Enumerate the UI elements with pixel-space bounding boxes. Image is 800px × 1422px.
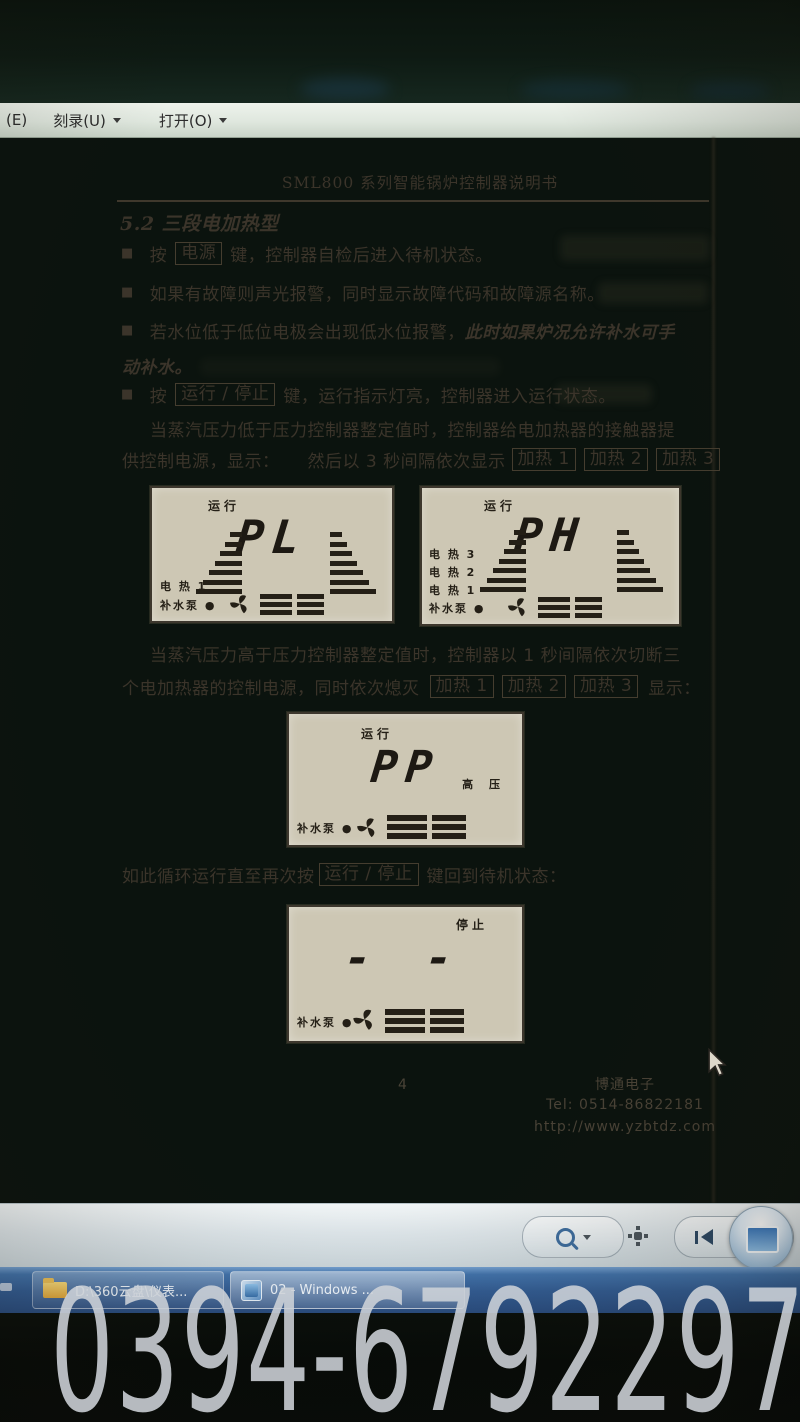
lcd-label-pump: 补水泵 ● bbox=[429, 600, 485, 616]
bullet-item: ■ 如果有故障则声光报警，同时显示故障代码和故障源名称。 bbox=[121, 280, 605, 305]
lcd-label-pump: 补水泵 ● bbox=[297, 820, 353, 836]
heat3-key-box: 加热 3 bbox=[574, 675, 638, 698]
lcd-label-heater2: 电 热 2 bbox=[429, 564, 476, 580]
heat2-key-box: 加热 2 bbox=[502, 675, 566, 698]
section-heading: 5.2 三段电加热型 bbox=[120, 209, 279, 236]
bullet-text: 键，控制器自检后进入待机状态。 bbox=[230, 241, 493, 266]
paragraph-text: 供控制电源，显示： bbox=[122, 447, 280, 472]
run-stop-key-box: 运行 / 停止 bbox=[175, 383, 275, 406]
page-number: 4 bbox=[398, 1077, 408, 1093]
bullet-text: 按 bbox=[150, 382, 168, 407]
page-title: SML800 系列智能锅炉控制器说明书 bbox=[120, 171, 720, 193]
menu-bar: (E) 刻录(U) 打开(O) bbox=[0, 103, 800, 138]
fan-icon bbox=[355, 815, 380, 840]
screen-reflection bbox=[520, 80, 630, 100]
bullet-marker: ■ bbox=[121, 246, 134, 261]
heat1-key-box: 加热 1 bbox=[430, 675, 494, 698]
bullet-text: 键，运行指示灯亮，控制器进入运行状态。 bbox=[283, 382, 616, 407]
taskbar-item-partial[interactable] bbox=[0, 1283, 12, 1291]
company-url: http://www.yzbtdz.com bbox=[520, 1119, 730, 1135]
fan-icon bbox=[506, 595, 530, 619]
lcd-display-pl: 运行 PL 电 热 1 补水泵 ● bbox=[150, 486, 394, 623]
zoom-control-pill[interactable] bbox=[522, 1216, 624, 1258]
paragraph-text: 个电加热器的控制电源，同时依次熄灭 bbox=[122, 674, 420, 699]
lcd-label-heater1: 电 热 1 bbox=[429, 582, 476, 598]
run-stop-key-box: 运行 / 停止 bbox=[319, 863, 419, 886]
photo-of-monitor: (E) 刻录(U) 打开(O) SML800 系列智能锅炉控制器说明书 5.2 … bbox=[0, 0, 800, 1422]
heater-coil-icon bbox=[538, 597, 602, 618]
actual-size-icon bbox=[628, 1226, 648, 1246]
lcd-display-stop: 停止 - - 补水泵 ● bbox=[287, 905, 524, 1043]
zoom-caret-icon bbox=[583, 1235, 591, 1240]
menu-item-label: 打开(O) bbox=[159, 110, 213, 131]
bullet-text: 按 bbox=[150, 241, 168, 266]
paragraph-line: 当蒸汽压力高于压力控制器整定值时，控制器以 1 秒间隔依次切断三 bbox=[150, 641, 681, 666]
paragraph-text: 然后以 3 秒间隔依次显示 bbox=[308, 447, 506, 472]
heater-coil-icon bbox=[387, 815, 466, 839]
menu-item-label: (E) bbox=[6, 111, 27, 129]
power-key-box: 电源 bbox=[175, 242, 222, 265]
fan-icon bbox=[228, 592, 252, 616]
company-tel: Tel: 0514-86822181 bbox=[520, 1097, 730, 1113]
previous-icon bbox=[695, 1231, 698, 1244]
actual-size-button[interactable] bbox=[628, 1226, 648, 1246]
photo-icon bbox=[746, 1226, 779, 1253]
bullet-item: ■ 按 电源 键，控制器自检后进入待机状态。 bbox=[121, 241, 493, 266]
menu-item-open[interactable]: 打开(O) bbox=[153, 110, 234, 131]
lcd-value: - - bbox=[286, 933, 524, 984]
bullet-item: ■ 按 运行 / 停止 键，运行指示灯亮，控制器进入运行状态。 bbox=[121, 382, 616, 407]
company-name: 博通电子 bbox=[520, 1074, 730, 1094]
previous-icon bbox=[701, 1229, 713, 1245]
lcd-status-label: 运行 bbox=[361, 725, 393, 742]
paragraph-line: 个电加热器的控制电源，同时依次熄灭 加热 1 加热 2 加热 3 显示： bbox=[122, 674, 701, 699]
heater-coil-icon bbox=[385, 1009, 464, 1033]
screen-reflection bbox=[300, 78, 390, 100]
heat2-key-box: 加热 2 bbox=[584, 448, 648, 471]
menu-item-file-partial[interactable]: (E) bbox=[0, 111, 33, 129]
watermark-text: 0394-6792297 bbox=[50, 1268, 800, 1422]
ink-bleed-smudge bbox=[560, 235, 710, 261]
lcd-status-label: 停止 bbox=[456, 916, 488, 933]
top-bezel bbox=[0, 0, 800, 103]
bullet-text: 如果有故障则声光报警，同时显示故障代码和故障源名称。 bbox=[150, 280, 605, 305]
mouse-cursor bbox=[706, 1048, 728, 1078]
high-pressure-label: 高 压 bbox=[462, 776, 506, 792]
fan-icon bbox=[351, 1006, 378, 1033]
water-level-bars-left bbox=[480, 530, 526, 592]
bullet-marker: ■ bbox=[121, 285, 134, 300]
lcd-display-pp: 运行 PP 高 压 补水泵 ● bbox=[287, 712, 524, 847]
ink-bleed-smudge bbox=[598, 282, 708, 304]
page-fold-crease bbox=[712, 137, 715, 1203]
water-level-bars-right bbox=[330, 532, 376, 594]
paragraph-line: 当蒸汽压力低于压力控制器整定值时，控制器给电加热器的接触器提 bbox=[150, 416, 675, 441]
heat3-key-box: 加热 3 bbox=[656, 448, 720, 471]
screen-reflection bbox=[690, 82, 770, 100]
bullet-text-italic: 此时如果炉况允许补水可手 bbox=[465, 318, 675, 343]
heat1-key-box: 加热 1 bbox=[512, 448, 576, 471]
lcd-label-heater1: 电 热 1 bbox=[160, 578, 207, 594]
bullet-item: ■ 若水位低于低位电极会出现低水位报警， 此时如果炉况允许补水可手 bbox=[121, 318, 675, 343]
paragraph-line: 如此循环运行直至再次按 运行 / 停止 键回到待机状态： bbox=[122, 862, 567, 887]
water-level-bars-right bbox=[617, 530, 663, 592]
lcd-label-pump: 补水泵 ● bbox=[297, 1014, 353, 1030]
lcd-label-heater3: 电 热 3 bbox=[429, 546, 476, 562]
menu-item-label: 刻录(U) bbox=[53, 110, 106, 131]
bullet-text: 若水位低于低位电极会出现低水位报警， bbox=[150, 318, 465, 343]
paragraph-line: 供控制电源，显示： 然后以 3 秒间隔依次显示 加热 1 加热 2 加热 3 bbox=[122, 447, 722, 472]
lcd-label-pump: 补水泵 ● bbox=[160, 597, 216, 613]
dropdown-caret-icon bbox=[113, 118, 121, 123]
title-rule bbox=[117, 200, 709, 202]
bullet-marker: ■ bbox=[121, 323, 134, 338]
paragraph-text: 键回到待机状态： bbox=[427, 862, 567, 887]
magnifier-icon bbox=[556, 1228, 575, 1247]
heater-coil-icon bbox=[260, 594, 324, 615]
dropdown-caret-icon bbox=[219, 118, 227, 123]
ink-bleed-smudge bbox=[200, 358, 500, 376]
lcd-display-ph: 运行 PH 电 热 3 电 热 2 电 热 1 补水泵 ● bbox=[420, 486, 681, 626]
previous-button[interactable] bbox=[695, 1229, 713, 1245]
menu-item-burn[interactable]: 刻录(U) bbox=[47, 110, 127, 131]
bullet-marker: ■ bbox=[121, 387, 134, 402]
bullet-text-italic: 动补水。 bbox=[122, 353, 192, 378]
paragraph-text: 显示： bbox=[648, 674, 701, 699]
paragraph-text: 如此循环运行直至再次按 bbox=[122, 862, 315, 887]
